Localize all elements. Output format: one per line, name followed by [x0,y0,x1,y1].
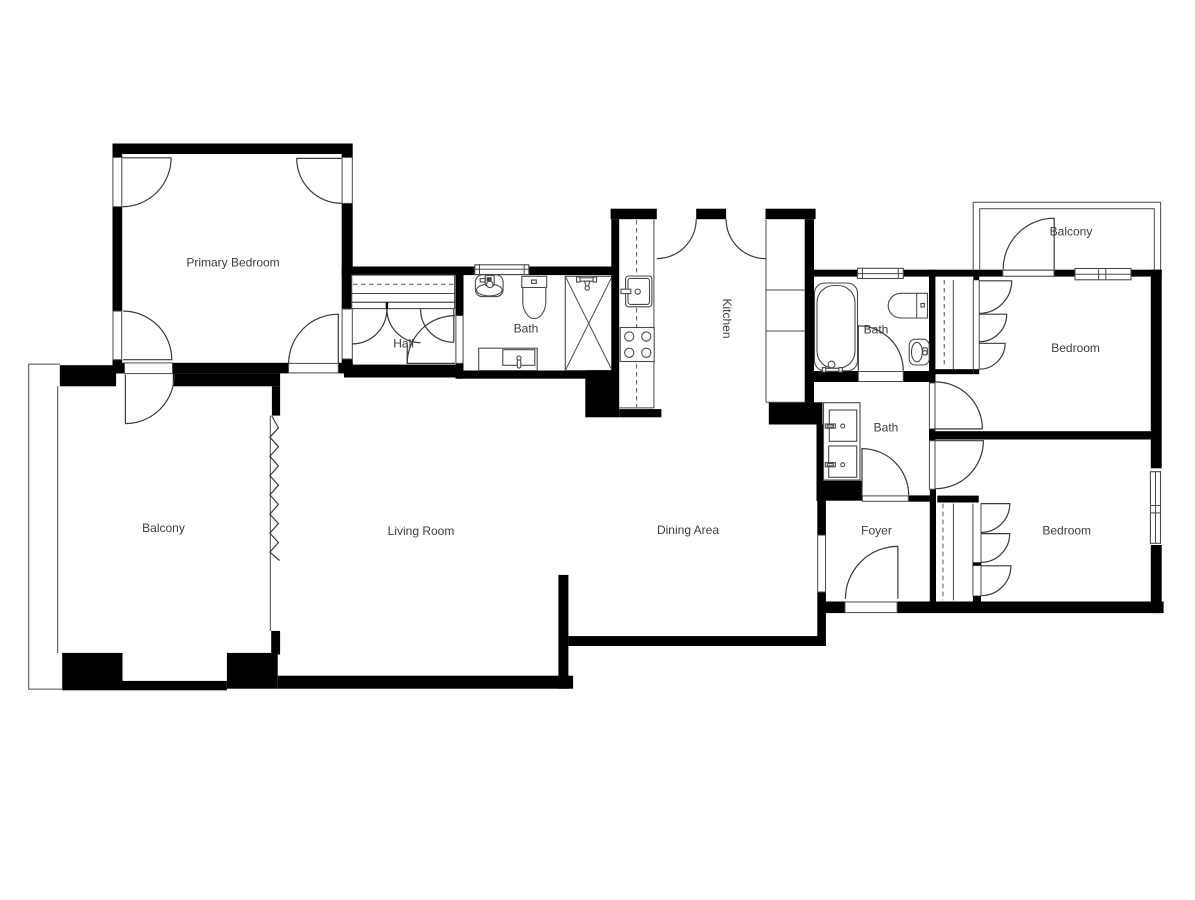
svg-text:Balcony: Balcony [1050,225,1093,239]
svg-text:Living Room: Living Room [388,524,455,538]
svg-text:Foyer: Foyer [861,524,892,538]
svg-text:Kitchen: Kitchen [720,298,734,338]
svg-text:Bedroom: Bedroom [1051,341,1100,355]
svg-text:Dining Area: Dining Area [657,523,719,537]
svg-text:Bedroom: Bedroom [1042,524,1091,538]
svg-text:Hall: Hall [393,337,414,351]
svg-text:Bath: Bath [874,421,899,435]
svg-text:Bath: Bath [514,322,539,336]
svg-text:Balcony: Balcony [142,521,185,535]
svg-text:Bath: Bath [864,323,889,337]
svg-text:Primary Bedroom: Primary Bedroom [186,256,279,270]
